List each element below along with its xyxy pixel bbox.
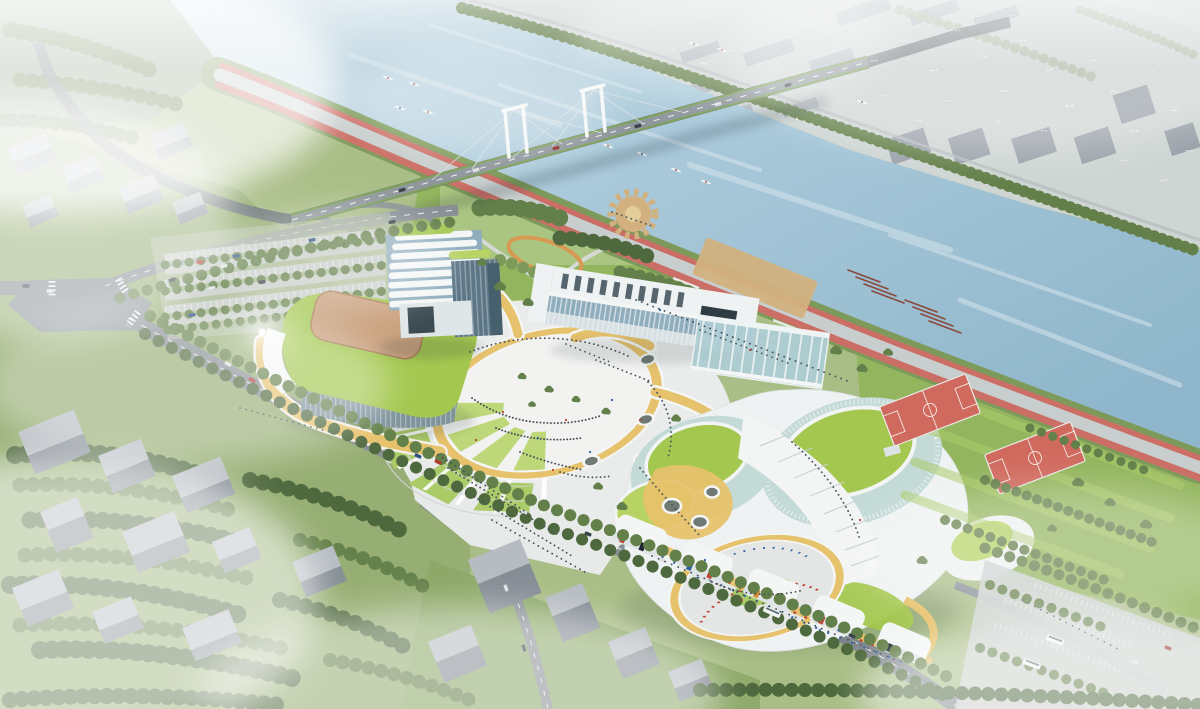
aerial-rendering: [0, 0, 1200, 709]
architectural-rendering-stage: [0, 0, 1200, 709]
tower-entry: [407, 306, 434, 333]
top-haze: [0, 0, 1200, 70]
